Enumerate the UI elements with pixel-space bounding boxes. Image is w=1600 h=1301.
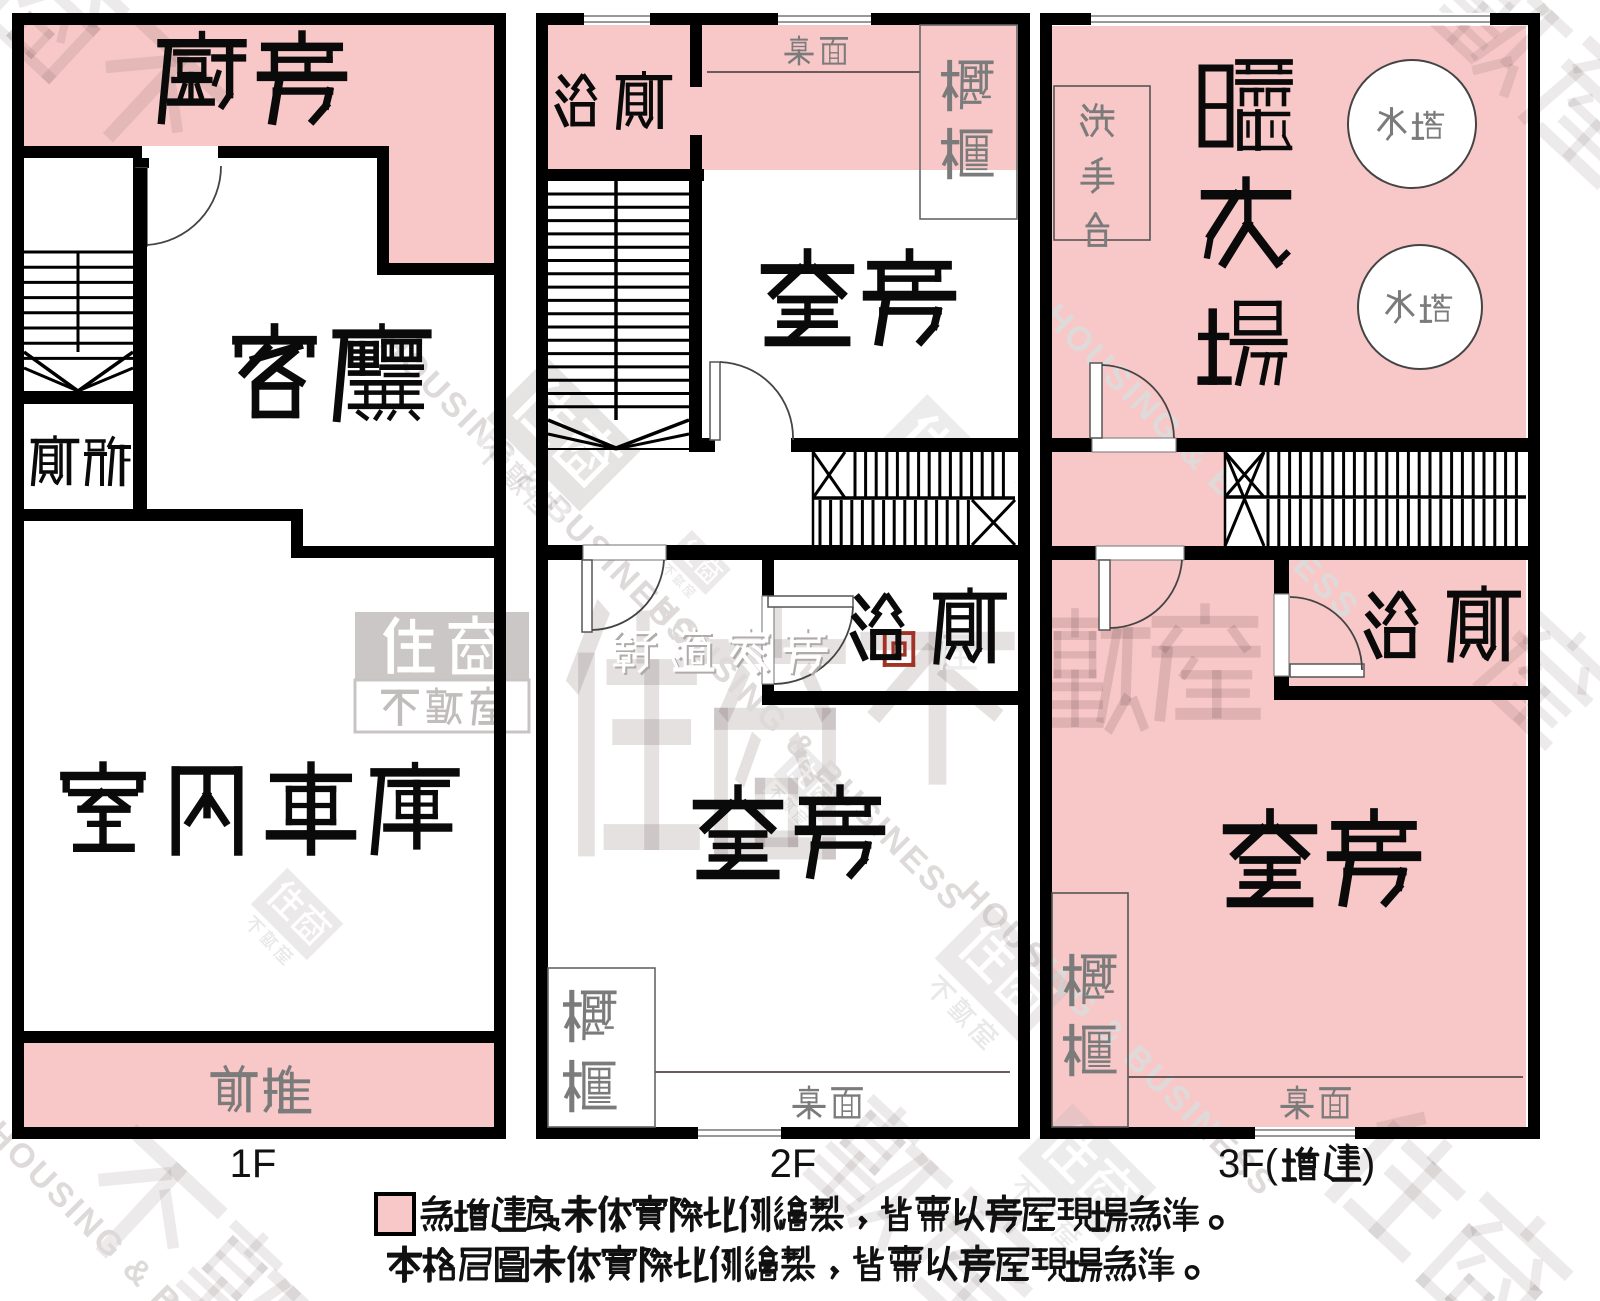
svg-text:3F(: 3F( — [1218, 1142, 1279, 1186]
svg-text:): ) — [1362, 1142, 1375, 1186]
svg-text:2F: 2F — [770, 1142, 817, 1186]
svg-text:1F: 1F — [230, 1142, 277, 1186]
